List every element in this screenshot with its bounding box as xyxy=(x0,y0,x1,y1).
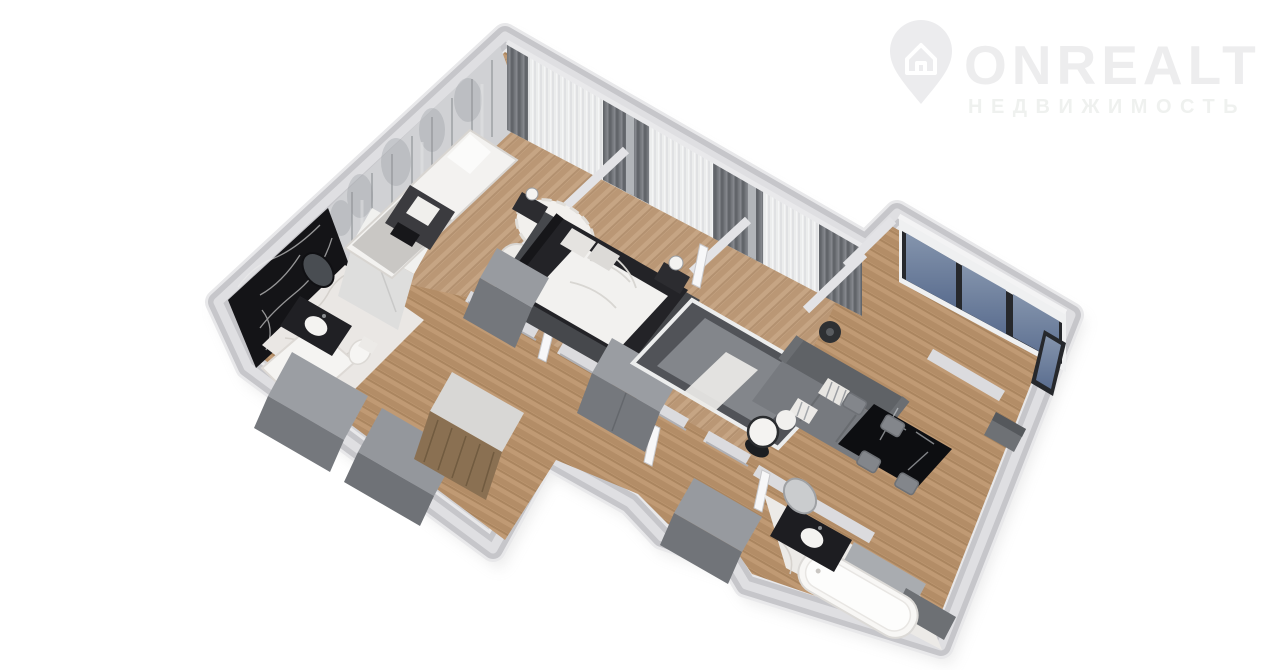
watermark: ONREALT НЕДВИЖИМОСТЬ xyxy=(890,20,1261,118)
floor-plan-render: ONREALT НЕДВИЖИМОСТЬ xyxy=(0,0,1280,670)
wall-divider xyxy=(748,181,756,260)
white-pillow xyxy=(776,410,796,430)
dark-curtain xyxy=(507,42,528,141)
floor-plan-canvas: ONREALT НЕДВИЖИМОСТЬ xyxy=(0,0,1280,670)
floor-lamp xyxy=(819,321,841,343)
brand-name: ONREALT xyxy=(964,34,1261,96)
brand-subtitle: НЕДВИЖИМОСТЬ xyxy=(968,96,1246,118)
